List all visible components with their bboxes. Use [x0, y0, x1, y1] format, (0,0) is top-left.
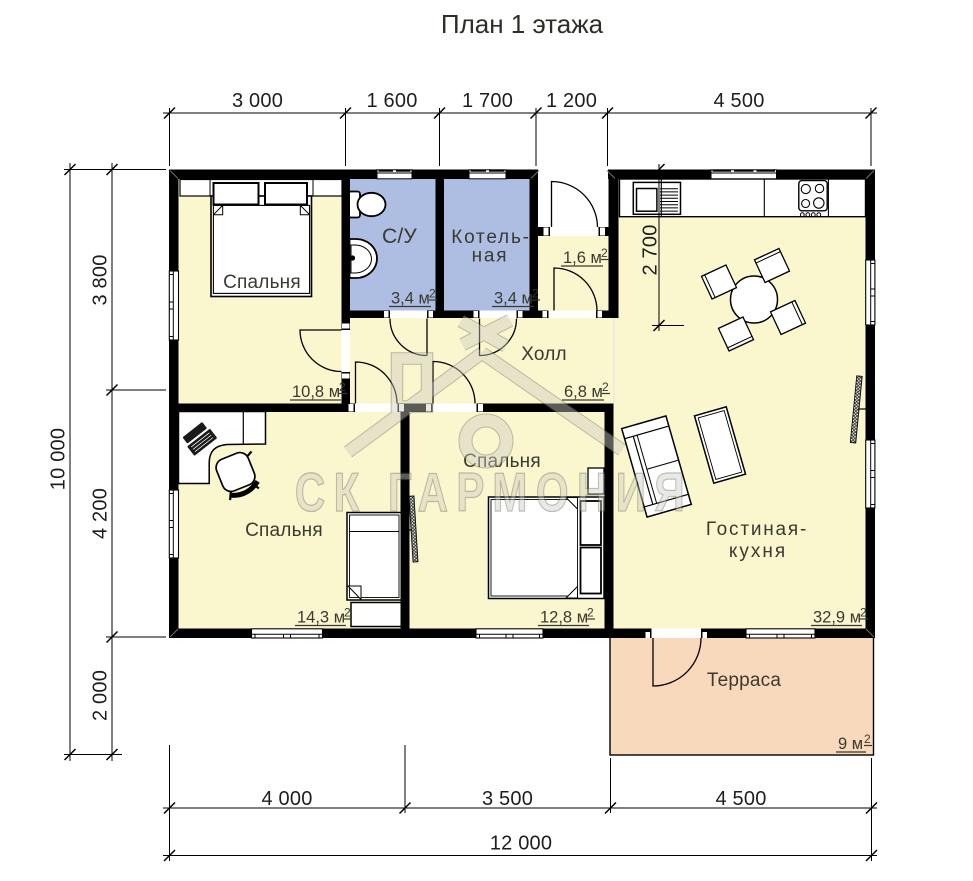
svg-text:Спальня: Спальня [223, 272, 301, 293]
svg-text:2: 2 [860, 606, 867, 620]
svg-text:1 200: 1 200 [546, 90, 597, 112]
svg-text:2: 2 [532, 287, 539, 301]
svg-text:ная: ная [472, 246, 509, 267]
svg-text:Холл: Холл [521, 344, 567, 365]
svg-text:С/У: С/У [382, 225, 417, 248]
svg-text:СК ГАРМОНИЯ: СК ГАРМОНИЯ [295, 463, 693, 524]
svg-text:1 600: 1 600 [366, 90, 417, 112]
svg-text:4 200: 4 200 [90, 488, 112, 539]
svg-text:9 м: 9 м [838, 735, 863, 753]
svg-text:12,8 м: 12,8 м [540, 609, 588, 627]
svg-text:3 500: 3 500 [482, 788, 533, 810]
svg-text:12 000: 12 000 [490, 833, 552, 855]
svg-text:4 000: 4 000 [261, 788, 312, 810]
svg-text:2: 2 [601, 246, 608, 260]
svg-text:2: 2 [602, 380, 609, 394]
svg-text:1 700: 1 700 [462, 90, 513, 112]
svg-text:3 800: 3 800 [90, 254, 112, 305]
svg-text:14,3 м: 14,3 м [297, 609, 345, 627]
svg-text:3 000: 3 000 [232, 90, 283, 112]
svg-text:3,4 м: 3,4 м [494, 290, 533, 308]
svg-text:10,8 м: 10,8 м [292, 383, 340, 401]
svg-text:кухня: кухня [729, 541, 787, 562]
svg-text:10 000: 10 000 [48, 428, 70, 490]
svg-text:2: 2 [587, 606, 594, 620]
svg-text:2 000: 2 000 [90, 670, 112, 721]
svg-text:2: 2 [864, 732, 871, 746]
svg-text:32,9 м: 32,9 м [813, 609, 861, 627]
svg-text:2: 2 [344, 606, 351, 620]
svg-text:План 1 этажа: План 1 этажа [441, 9, 604, 39]
svg-text:Терраса: Терраса [707, 670, 782, 691]
svg-text:2: 2 [339, 380, 346, 394]
svg-text:2: 2 [429, 287, 436, 301]
svg-text:4 500: 4 500 [713, 90, 764, 112]
svg-text:Гостиная-: Гостиная- [706, 519, 808, 540]
svg-text:6,8 м: 6,8 м [564, 383, 603, 401]
svg-text:3,4 м: 3,4 м [391, 290, 430, 308]
svg-text:1,6 м: 1,6 м [563, 249, 602, 267]
svg-text:2 700: 2 700 [640, 224, 662, 275]
svg-text:4 500: 4 500 [715, 788, 766, 810]
